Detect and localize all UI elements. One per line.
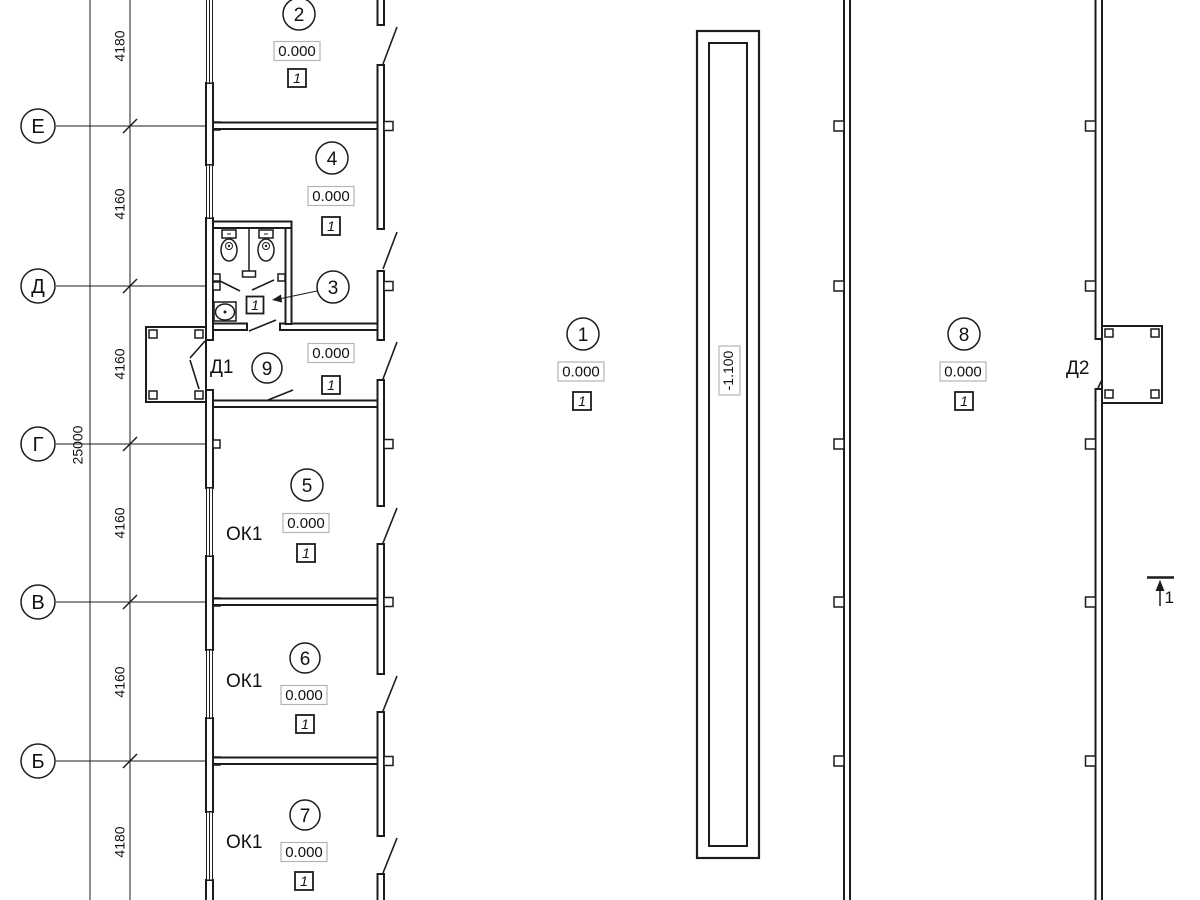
svg-text:1: 1 [578, 393, 586, 409]
porch-d1: Д1 [146, 327, 233, 402]
svg-text:0.000: 0.000 [278, 43, 316, 60]
axis-bubble-b: Б [21, 744, 55, 778]
svg-text:0.000: 0.000 [312, 188, 350, 205]
svg-text:Д: Д [31, 276, 45, 298]
dim-4180-top: 4180 [112, 30, 128, 61]
window-label-ok1-room7: ОК1 [226, 832, 262, 853]
svg-text:9: 9 [262, 359, 273, 380]
room-tag-6: 6 0.000 1 ОК1 [226, 643, 327, 733]
section-number: 1 [1165, 588, 1174, 607]
door-label-d2: Д2 [1066, 358, 1089, 379]
middle-wall [834, 0, 850, 900]
window-room4 [207, 165, 213, 218]
toilet-icon-2 [258, 230, 274, 261]
svg-text:0.000: 0.000 [287, 515, 325, 532]
svg-text:1: 1 [960, 393, 968, 409]
window-room5 [207, 488, 213, 556]
axis-bubble-v: В [21, 585, 55, 619]
axis-bubble-g: Г [21, 427, 55, 461]
svg-text:0.000: 0.000 [562, 364, 600, 381]
toilet-icon-1 [221, 230, 237, 261]
window-room6 [207, 650, 213, 718]
stall-partition [243, 228, 256, 277]
wc-room: 1 [213, 228, 285, 321]
room-tag-5: 5 0.000 1 ОК1 [226, 469, 329, 562]
dimension-system: 4180 4160 4160 4160 4160 4180 25000 [70, 0, 137, 900]
room-tag-8: 8 0.000 1 [940, 318, 986, 410]
svg-text:0.000: 0.000 [285, 844, 323, 861]
svg-text:1: 1 [301, 716, 309, 732]
floor-plan-drawing: 4180 4160 4160 4160 4160 4180 25000 Е Д … [0, 0, 1200, 900]
svg-text:6: 6 [300, 649, 311, 670]
right-exterior-wall [1086, 0, 1117, 900]
floor-plan-canvas: 4180 4160 4160 4160 4160 4180 25000 Е Д … [0, 0, 1200, 900]
svg-text:В: В [31, 592, 44, 614]
room-tag-1: 1 0.000 1 [558, 318, 604, 410]
left-building-right-wall [378, 0, 398, 900]
svg-text:Б: Б [31, 751, 44, 773]
svg-text:Е: Е [31, 116, 44, 138]
window-label-ok1-room5: ОК1 [226, 524, 262, 545]
porch-d2: Д2 [1066, 326, 1162, 403]
svg-text:4: 4 [327, 149, 338, 170]
dim-4160-vb: 4160 [112, 666, 128, 697]
dim-4160-ed: 4160 [112, 188, 128, 219]
svg-text:1: 1 [327, 218, 335, 234]
door-label-d1: Д1 [210, 357, 233, 378]
svg-text:3: 3 [328, 278, 339, 299]
room-tag-3: 3 0.000 1 [272, 271, 354, 394]
room-tag-7: 7 0.000 1 ОК1 [226, 800, 327, 890]
dim-4160-dg: 4160 [112, 348, 128, 379]
window-room7 [207, 812, 213, 880]
section-arrow-icon [1156, 580, 1165, 591]
svg-text:1: 1 [300, 873, 308, 889]
svg-text:8: 8 [959, 325, 970, 346]
pit: -1.100 [697, 31, 759, 858]
sink-icon [214, 302, 236, 321]
axis-bubble-e: Е [21, 109, 55, 143]
axis-bubble-d: Д [21, 269, 55, 303]
svg-text:1: 1 [578, 325, 589, 346]
svg-text:Г: Г [33, 434, 44, 456]
window-room2 [207, 0, 213, 83]
leader-arrow [272, 295, 282, 303]
wc-floor-tag: 1 [247, 297, 264, 314]
dim-4180-bottom: 4180 [112, 826, 128, 857]
room-tag-2: 2 0.000 1 [274, 0, 320, 87]
svg-text:1: 1 [293, 70, 301, 86]
svg-text:2: 2 [294, 5, 305, 26]
pit-elevation: -1.100 [720, 350, 736, 390]
svg-text:1: 1 [251, 297, 259, 313]
room-tag-4: 4 0.000 1 [308, 142, 354, 235]
svg-text:0.000: 0.000 [944, 364, 982, 381]
svg-text:1: 1 [302, 545, 310, 561]
svg-text:0.000: 0.000 [312, 345, 350, 362]
svg-text:5: 5 [302, 476, 313, 497]
svg-text:0.000: 0.000 [285, 687, 323, 704]
svg-text:1: 1 [327, 377, 335, 393]
dim-overall-25000: 25000 [70, 425, 86, 464]
dim-4160-gv: 4160 [112, 507, 128, 538]
room-tag-9: 9 [252, 353, 282, 383]
window-label-ok1-room6: ОК1 [226, 671, 262, 692]
section-marker: 1 [1147, 578, 1174, 608]
svg-text:7: 7 [300, 806, 311, 827]
